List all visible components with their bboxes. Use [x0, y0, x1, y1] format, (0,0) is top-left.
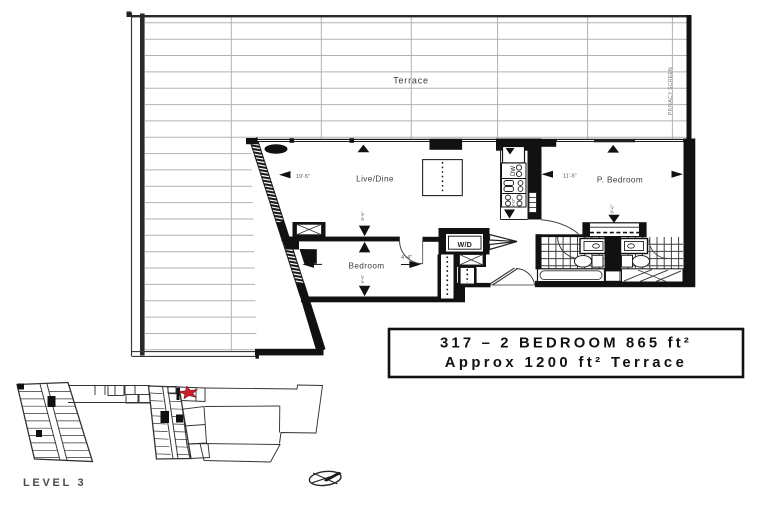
svg-text:9'-0": 9'-0" [610, 204, 615, 214]
svg-text:4'-4": 4'-4" [401, 255, 412, 261]
svg-text:11'-5": 11'-5" [563, 174, 577, 180]
svg-text:Terrace: Terrace [393, 76, 429, 86]
svg-text:LEVEL 3: LEVEL 3 [23, 477, 86, 489]
svg-text:Live/Dine: Live/Dine [356, 175, 394, 184]
svg-text:19'-5": 19'-5" [296, 174, 310, 180]
svg-text:Approx 1200 ft² Terrace: Approx 1200 ft² Terrace [445, 355, 687, 371]
svg-text:W/D: W/D [458, 240, 473, 249]
svg-text:P. Bedroom: P. Bedroom [597, 176, 643, 185]
svg-text:9'-0": 9'-0" [511, 198, 516, 207]
svg-text:Bedroom: Bedroom [348, 261, 384, 270]
svg-text:PRIVACY SCREEN: PRIVACY SCREEN [668, 67, 674, 115]
svg-text:9'-0": 9'-0" [360, 274, 365, 284]
svg-text:317 – 2 BEDROOM 865 ft²: 317 – 2 BEDROOM 865 ft² [440, 336, 692, 352]
svg-text:8'-6": 8'-6" [360, 211, 365, 221]
